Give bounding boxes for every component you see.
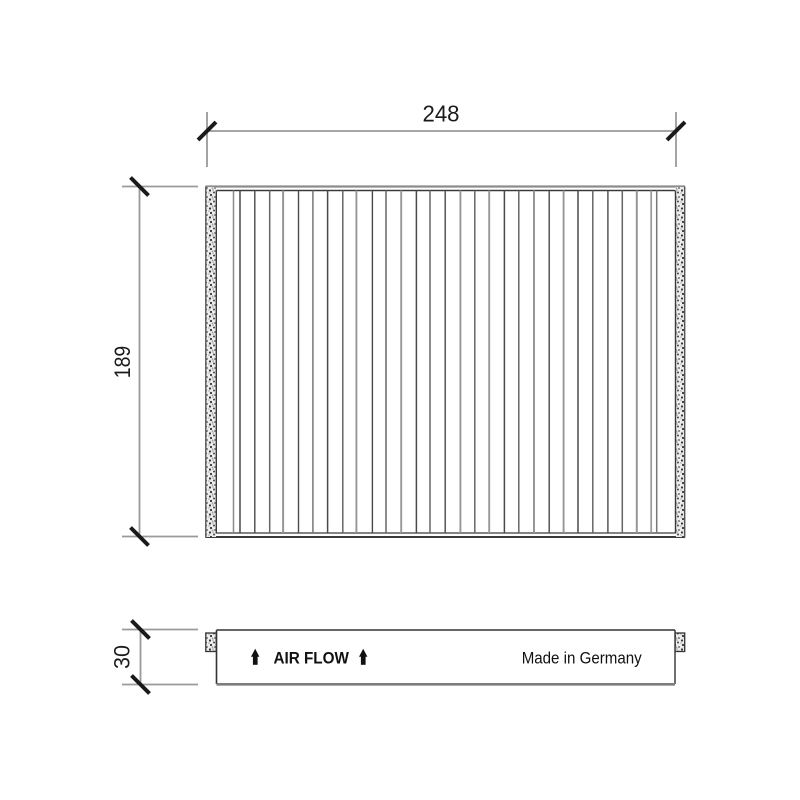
svg-text:189: 189 (110, 346, 135, 379)
svg-text:30: 30 (110, 645, 135, 669)
svg-text:AIR FLOW: AIR FLOW (273, 650, 349, 668)
svg-text:248: 248 (423, 100, 460, 126)
svg-text:Made in Germany: Made in Germany (522, 649, 642, 668)
